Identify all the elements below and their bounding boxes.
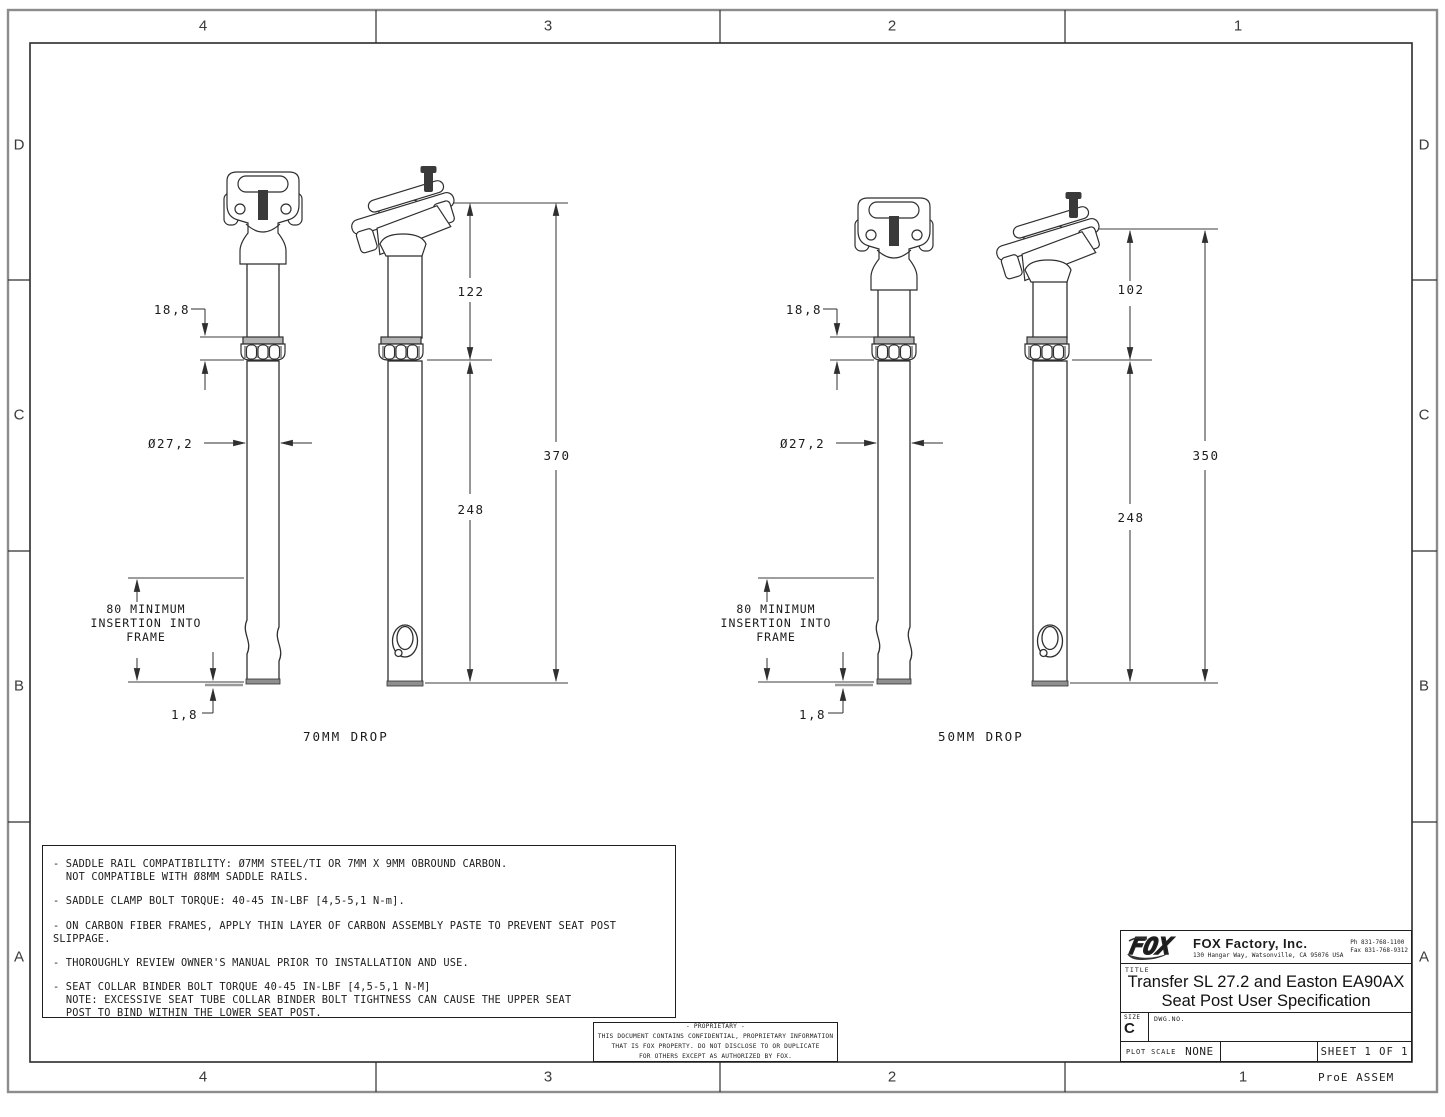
insertion-right-line1: 80 MINIMUM (736, 602, 815, 616)
seatpost-50mm-perspective-view (991, 192, 1108, 686)
title-block-size-row: SIZE C DWG.NO. (1121, 1013, 1411, 1042)
dim-122: 122 (457, 284, 484, 299)
drop-label-50mm: 50MM DROP (938, 729, 1024, 744)
dim-248-left: 248 (457, 502, 484, 517)
seatpost-70mm-front-view (224, 172, 302, 684)
zone-col-3-top: 3 (544, 18, 552, 35)
note-clamp-torque: - SADDLE CLAMP BOLT TORQUE: 40-45 IN-LBF… (53, 895, 665, 908)
insertion-left-line2: INSERTION INTO (91, 616, 202, 630)
insertion-note-right: 80 MINIMUM INSERTION INTO FRAME (721, 602, 832, 644)
zone-row-b-left: B (14, 678, 24, 695)
drawing-title-line1: Transfer SL 27.2 and Easton EA90AX (1121, 973, 1411, 992)
dim-diameter-right: Ø27,2 (780, 436, 825, 451)
drop-label-70mm: 70MM DROP (303, 729, 389, 744)
dim-1-8-right: 1,8 (799, 707, 826, 722)
company-address: 130 Hangar Way, Watsonville, CA 95076 US… (1193, 952, 1343, 959)
insertion-right-line3: FRAME (756, 630, 796, 644)
dim-370: 370 (543, 448, 570, 463)
seatpost-70mm-perspective-view (346, 166, 463, 686)
drawing-sheet: 122 248 370 18,8 Ø27,2 1,8 102 248 350 1… (0, 0, 1445, 1117)
plot-scale-value: NONE (1185, 1045, 1214, 1058)
size-value: C (1124, 1021, 1148, 1036)
note-carbon-paste: - ON CARBON FIBER FRAMES, APPLY THIN LAY… (53, 920, 665, 946)
svg-text:FOX: FOX (1127, 933, 1176, 960)
dim-248-right: 248 (1117, 510, 1144, 525)
zone-row-c-right: C (1419, 407, 1430, 424)
dim-diameter-left: Ø27,2 (148, 436, 193, 451)
company-fax: Fax 831-768-9312 (1350, 947, 1408, 955)
zone-col-2-bottom: 2 (888, 1069, 896, 1086)
zone-row-d-left: D (14, 137, 25, 154)
proprietary-box: - PROPRIETARY - THIS DOCUMENT CONTAINS C… (593, 1022, 838, 1062)
sheet-number: SHEET 1 OF 1 (1318, 1046, 1411, 1058)
zone-row-c-left: C (14, 407, 25, 424)
insertion-right-line2: INSERTION INTO (721, 616, 832, 630)
plot-scale-label: PLOT SCALE (1126, 1048, 1176, 1056)
company-name: FOX Factory, Inc. (1193, 936, 1343, 951)
dwg-no-label: DWG.NO. (1149, 1013, 1185, 1041)
insertion-note-left: 80 MINIMUM INSERTION INTO FRAME (91, 602, 202, 644)
seatpost-50mm-front-view (855, 198, 933, 684)
zone-row-d-right: D (1419, 137, 1430, 154)
dim-1-8-left: 1,8 (171, 707, 198, 722)
zone-col-1-top: 1 (1234, 18, 1242, 35)
fox-logo: FOX (1121, 932, 1193, 962)
note-binder-torque: - SEAT COLLAR BINDER BOLT TORQUE 40-45 I… (53, 981, 665, 1021)
zone-col-3-bottom: 3 (544, 1069, 552, 1086)
zone-col-4-bottom: 4 (199, 1069, 207, 1086)
title-block-footer-row: PLOT SCALE NONE SHEET 1 OF 1 (1121, 1042, 1411, 1061)
zone-row-b-right: B (1419, 678, 1429, 695)
insertion-left-line1: 80 MINIMUM (106, 602, 185, 616)
title-block-company-row: FOX FOX Factory, Inc. 130 Hangar Way, Wa… (1121, 931, 1411, 964)
dim-350: 350 (1192, 448, 1219, 463)
dim-18-8-left: 18,8 (154, 302, 190, 317)
zone-row-a-left: A (14, 949, 24, 966)
title-block-title-row: TITLE Transfer SL 27.2 and Easton EA90AX… (1121, 964, 1411, 1013)
note-owners-manual: - THOROUGHLY REVIEW OWNER'S MANUAL PRIOR… (53, 957, 665, 970)
zone-col-2-top: 2 (888, 18, 896, 35)
zone-row-a-right: A (1419, 949, 1429, 966)
company-phone: Ph 831-768-1100 (1350, 939, 1408, 947)
zone-col-1-bottom: 1 (1239, 1069, 1247, 1086)
proprietary-text: - PROPRIETARY - THIS DOCUMENT CONTAINS C… (598, 1022, 834, 1062)
zone-col-4-top: 4 (199, 18, 207, 35)
dim-102: 102 (1117, 282, 1144, 297)
dim-18-8-right: 18,8 (786, 302, 822, 317)
title-block-empty-cell (1221, 1042, 1318, 1061)
drawing-title-line2: Seat Post User Specification (1121, 992, 1411, 1011)
note-saddle-rail: - SADDLE RAIL COMPATIBILITY: Ø7MM STEEL/… (53, 858, 665, 884)
notes-box: - SADDLE RAIL COMPATIBILITY: Ø7MM STEEL/… (42, 845, 676, 1018)
proe-assem-stamp: ProE ASSEM (1318, 1071, 1394, 1084)
insertion-left-line3: FRAME (126, 630, 166, 644)
title-block: FOX FOX Factory, Inc. 130 Hangar Way, Wa… (1120, 930, 1412, 1062)
